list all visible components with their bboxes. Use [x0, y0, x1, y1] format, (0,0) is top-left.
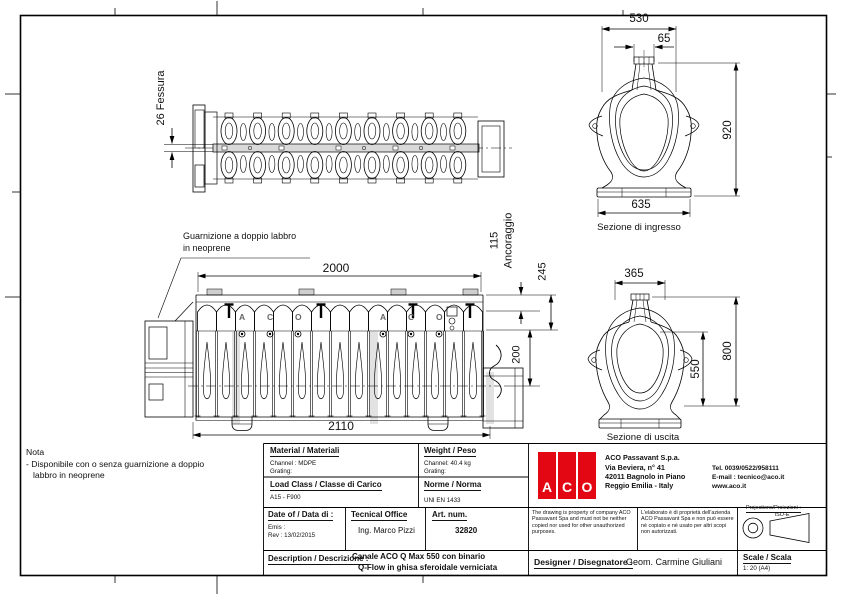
description-line1: Canale ACO Q Max 550 con binario: [352, 552, 485, 561]
note-line1: - Disponibile con o senza guarnizione a …: [26, 459, 204, 469]
outlet-dim-800: 800: [722, 335, 736, 367]
side-dim-2110: 2110: [301, 419, 381, 433]
side-view: [145, 258, 558, 439]
material-grating: Grating:: [270, 468, 292, 475]
copyright-en: The drawing is property of company ACO P…: [532, 510, 634, 536]
outlet-caption: Sezione di uscita: [573, 432, 713, 444]
cast-letter-o1: O: [295, 312, 302, 322]
copyright-it: L'elaborato è di proprietà dell'azienda …: [641, 510, 734, 536]
side-dim-245: 245: [537, 257, 550, 287]
scale-value: 1: 20 (A4): [743, 565, 770, 572]
drawing-sheet: 26 Fessura Guarnizione a doppio labbro i…: [0, 0, 842, 595]
weight-label: Weight / Peso: [424, 446, 476, 457]
norm-label: Norme / Norma: [424, 480, 481, 491]
sheet-frame: [5, 1, 836, 594]
inlet-dim-65: 65: [642, 33, 686, 47]
inlet-dim-920: 920: [722, 110, 736, 150]
aco-logo-letter-o: O: [578, 452, 596, 499]
outlet-section-view: [588, 280, 740, 428]
projections-value: ISO-E: [741, 512, 823, 519]
weight-channel: Channel: 40.4 kg: [424, 460, 471, 467]
drawing-artwork: [0, 0, 842, 595]
date-label: Date of / Data di :: [268, 510, 333, 521]
norm-value: UNI EN 1433: [424, 497, 460, 504]
designer-value: Geom. Carmine Giuliani: [626, 557, 722, 568]
date-emis: Emis :: [268, 524, 285, 531]
cast-letter-a1: A: [239, 312, 245, 322]
outlet-dim-550: 550: [690, 353, 704, 385]
inlet-dim-530: 530: [609, 13, 669, 27]
date-rev: Rev : 13/02/2015: [268, 532, 315, 539]
side-dim-2000: 2000: [296, 261, 376, 275]
side-dim-200: 200: [511, 340, 524, 370]
company-name: ACO Passavant S.p.a.: [605, 454, 680, 462]
inlet-caption: Sezione di ingresso: [569, 222, 709, 234]
material-channel: Channel : MDPE: [270, 460, 316, 467]
office-value: Ing. Marco Pizzi: [358, 526, 415, 535]
aco-logo-letter-a: A: [538, 452, 556, 499]
company-web: www.aco.it: [712, 483, 746, 491]
material-label: Material / Materiali: [270, 446, 339, 457]
plan-view: [164, 105, 512, 192]
note-title: Nota: [26, 447, 44, 457]
designer-label: Designer / Disegnatore :: [534, 557, 633, 569]
description-line2: Q-Flow in ghisa sferoidale verniciata: [358, 563, 497, 572]
load-class-value: A15 - F900: [270, 494, 301, 501]
aco-logo-letter-c: C: [558, 452, 576, 499]
artnum-value: 32820: [455, 526, 477, 535]
cast-letter-o2: O: [436, 312, 443, 322]
scale-label: Scale / Scala: [743, 553, 791, 564]
company-email: E-mail : tecnico@aco.it: [712, 474, 784, 482]
plan-slot-dimension: 26 Fessura: [154, 53, 168, 143]
outlet-dim-365: 365: [604, 268, 664, 282]
gasket-note-line2: in neoprene: [183, 243, 231, 254]
cast-letter-c1: C: [267, 312, 273, 322]
company-address3: Reggio Emilia - Italy: [605, 482, 673, 490]
cast-letter-c2: C: [408, 312, 414, 322]
office-label: Tecnical Office: [351, 510, 407, 521]
inlet-section-view: [589, 26, 740, 217]
side-dim-ancoraggio: Ancoraggio: [503, 201, 516, 281]
gasket-note-line1: Guarnizione a doppio labbro: [183, 231, 296, 242]
aco-logo: A C O: [538, 452, 596, 499]
load-class-label: Load Class / Classe di Carico: [270, 480, 382, 491]
artnum-label: Art. num.: [432, 510, 467, 521]
inlet-dim-635: 635: [611, 199, 671, 212]
note-line2: labbro in neoprene: [33, 470, 105, 480]
side-dim-115: 115: [489, 226, 502, 256]
cast-letter-a2: A: [380, 312, 386, 322]
weight-grating: Grating:: [424, 468, 446, 475]
company-tel: Tel. 0039/0522/958111: [712, 465, 779, 473]
